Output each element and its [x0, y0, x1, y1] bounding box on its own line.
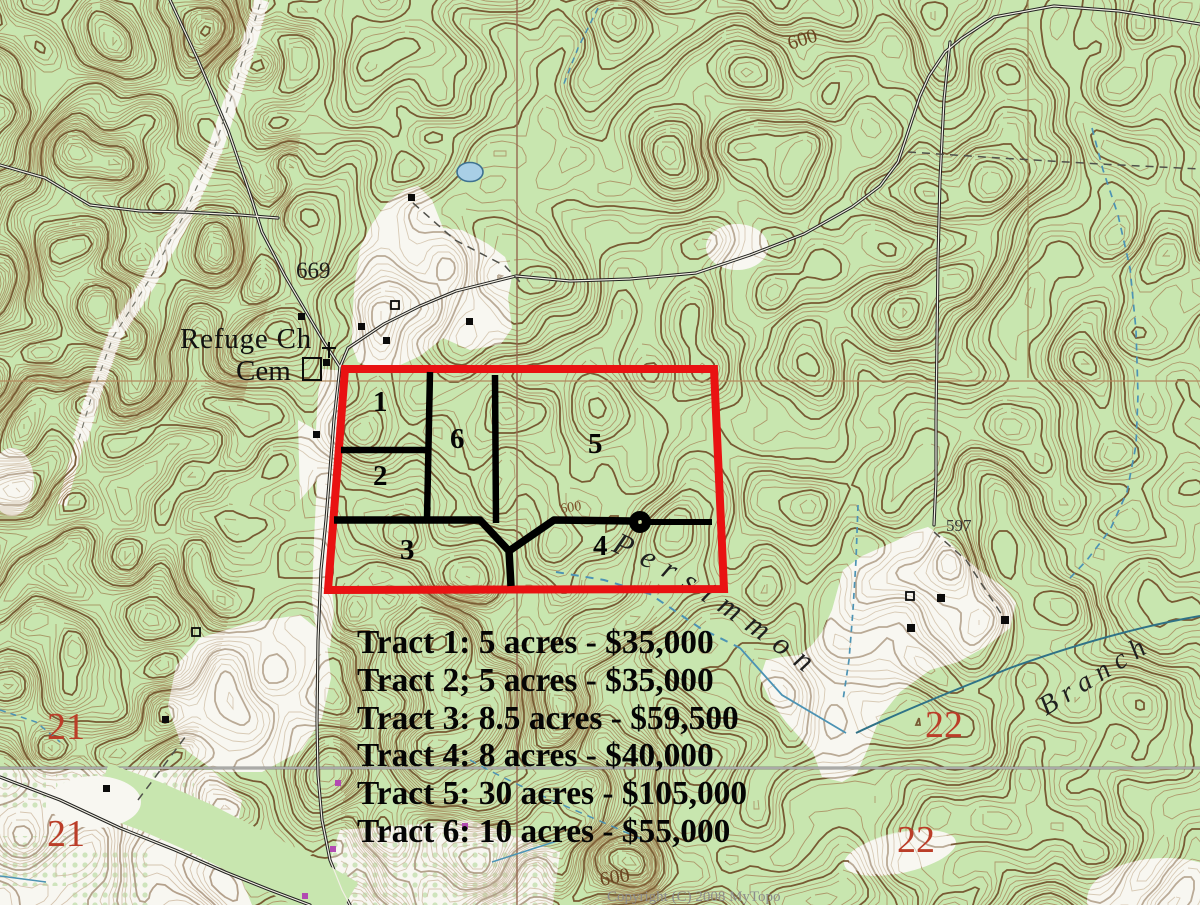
svg-text:2: 2: [373, 460, 388, 492]
svg-text:22: 22: [897, 819, 935, 861]
svg-text:Cem: Cem: [236, 355, 291, 387]
svg-text:Tract 1: 5 acres - $35,000: Tract 1: 5 acres - $35,000: [357, 624, 714, 661]
svg-text:1: 1: [373, 386, 388, 418]
svg-text:Tract 6: 10 acres - $55,000: Tract 6: 10 acres - $55,000: [357, 813, 730, 850]
svg-text:Refuge Ch: Refuge Ch: [180, 323, 312, 355]
svg-text:3: 3: [400, 534, 415, 566]
svg-text:6: 6: [450, 423, 465, 455]
svg-text:21: 21: [47, 706, 85, 748]
svg-text:22: 22: [925, 704, 963, 746]
svg-text:21: 21: [47, 813, 85, 855]
svg-text:Copyright (C) 2008 MyTopo: Copyright (C) 2008 MyTopo: [607, 889, 781, 905]
svg-text:Tract 4: 8 acres - $40,000: Tract 4: 8 acres - $40,000: [357, 737, 714, 774]
svg-text:4: 4: [593, 530, 608, 562]
svg-text:Tract 3: 8.5 acres - $59,500: Tract 3: 8.5 acres - $59,500: [357, 700, 739, 737]
svg-text:5: 5: [588, 428, 603, 460]
svg-text:597: 597: [946, 516, 972, 535]
svg-text:600: 600: [559, 499, 582, 517]
svg-text:669: 669: [296, 258, 331, 283]
svg-text:Tract 2; 5 acres - $35,000: Tract 2; 5 acres - $35,000: [357, 662, 714, 699]
svg-text:Tract 5: 30 acres - $105,000: Tract 5: 30 acres - $105,000: [357, 775, 747, 812]
